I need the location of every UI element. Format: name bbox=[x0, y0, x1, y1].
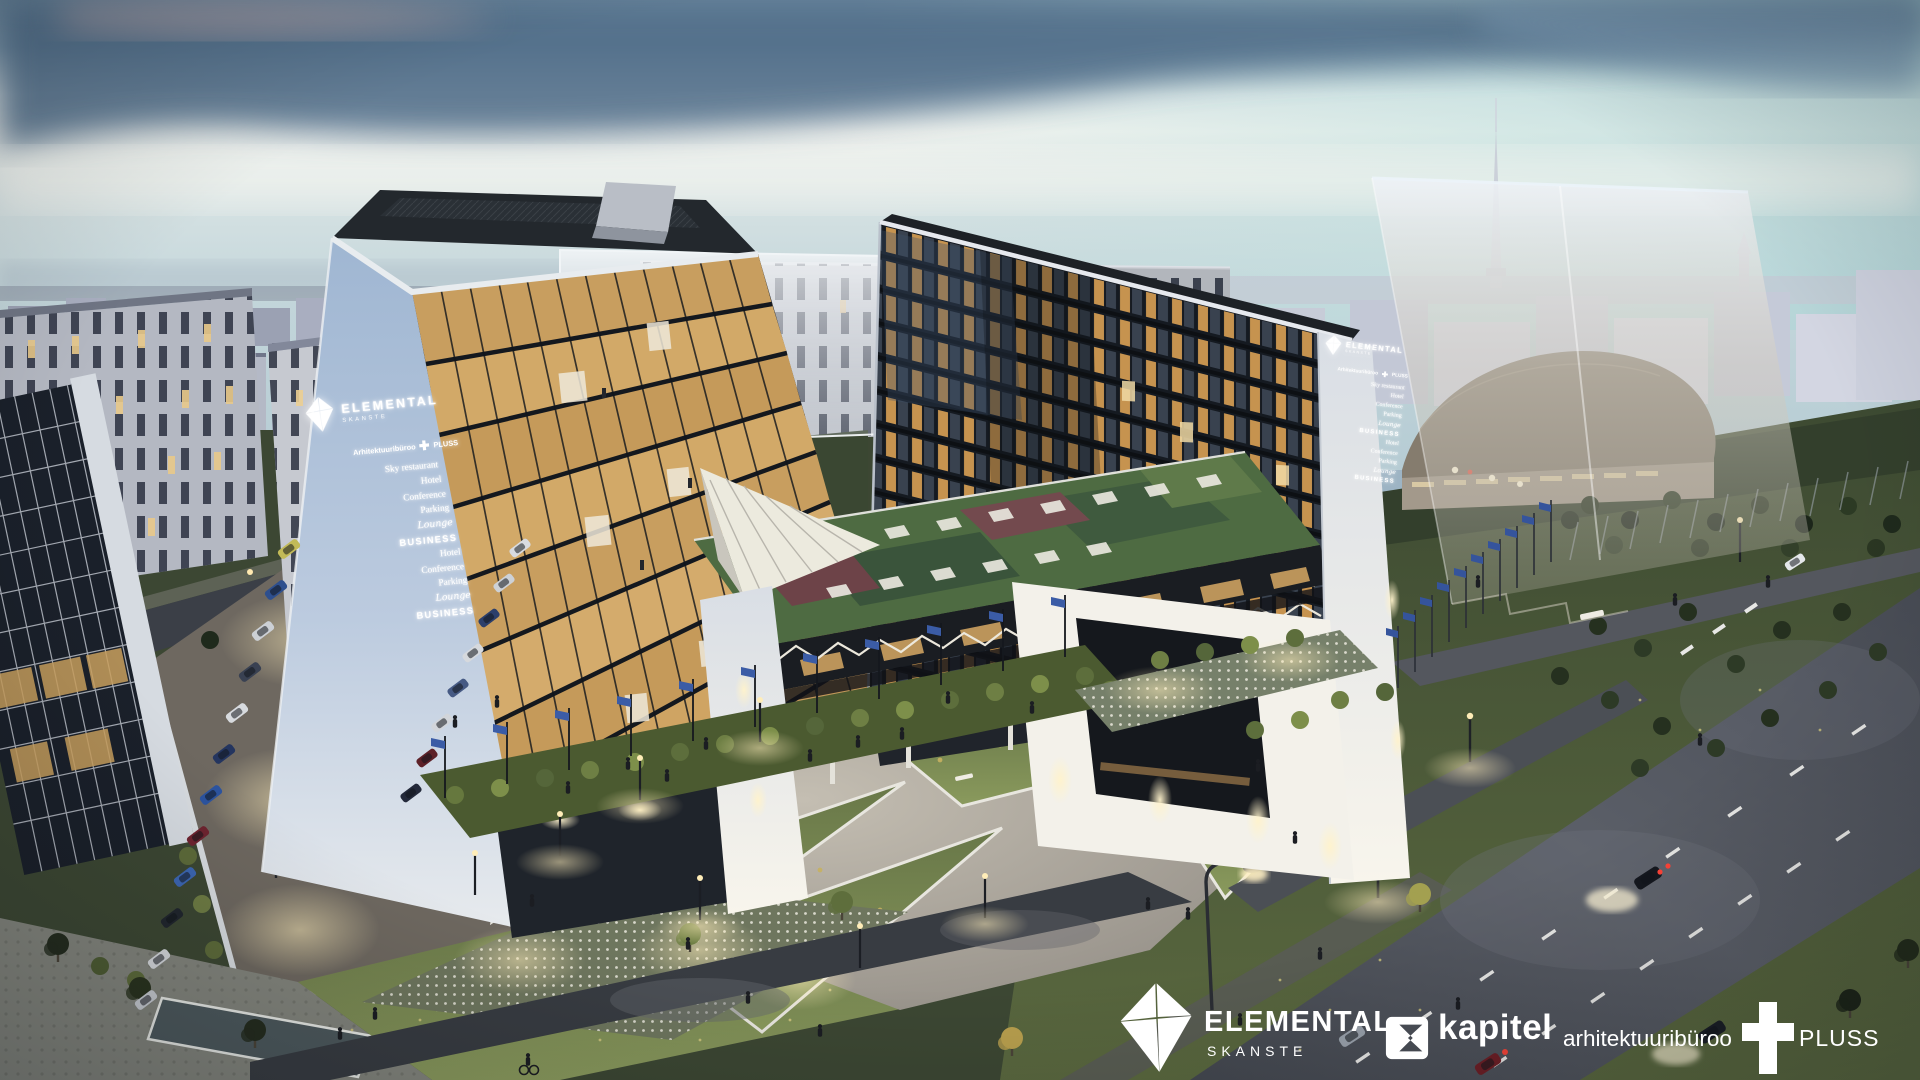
architect-name: Arhitektuuribüroo bbox=[353, 442, 416, 457]
elemental-diamond-icon bbox=[1324, 334, 1343, 357]
elemental-diamond-icon bbox=[303, 395, 336, 435]
architect-suffix: PLUSS bbox=[433, 438, 458, 449]
architect-suffix: PLUSS bbox=[1392, 373, 1408, 380]
pluss-cross-icon bbox=[1382, 371, 1389, 378]
office-signage-list: Sky restaurant Hotel Conference Parking … bbox=[1311, 376, 1407, 488]
vignette bbox=[0, 0, 1920, 1080]
kapitel-logo-title: kapitel bbox=[1438, 1008, 1552, 1048]
pluss-cross-icon bbox=[419, 440, 430, 451]
render-scene bbox=[0, 0, 1920, 1080]
elemental-logo-icon bbox=[1118, 981, 1194, 1080]
pluss-cross-icon bbox=[1742, 1002, 1794, 1079]
office-signage: ELEMENTAL SKANSTE Arhitektuuribüroo PLUS… bbox=[1311, 334, 1412, 488]
architect-logo-title: arhitektuuribüroo bbox=[1563, 1026, 1732, 1052]
elemental-logo-subtitle: SKANSTE bbox=[1207, 1043, 1307, 1059]
pluss-logo-title: PLUSS bbox=[1799, 1025, 1879, 1052]
hotel-signage-list: Sky restaurant Hotel Conference Parking … bbox=[310, 456, 475, 632]
kapitel-logo-icon bbox=[1384, 1015, 1430, 1066]
architectural-render: ELEMENTAL SKANSTE Arhitektuuribüroo PLUS… bbox=[0, 0, 1920, 1080]
elemental-logo-title: ELEMENTAL bbox=[1204, 1006, 1393, 1039]
architect-name: Arhitektuuribüroo bbox=[1337, 367, 1378, 376]
hotel-signage: ELEMENTAL SKANSTE Arhitektuuribüroo PLUS… bbox=[303, 383, 475, 632]
